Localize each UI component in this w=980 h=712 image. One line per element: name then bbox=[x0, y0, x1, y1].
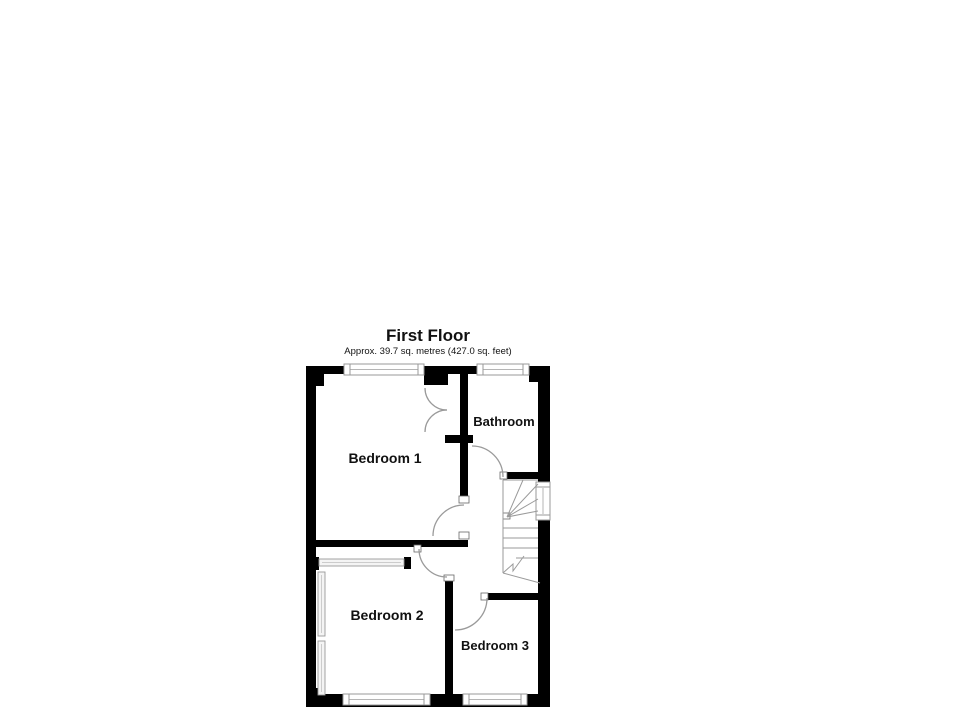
built-in-wardrobes bbox=[318, 559, 404, 695]
door-arc-bedroom-3 bbox=[455, 598, 487, 630]
door-arc-cupboard-bottom bbox=[425, 410, 447, 432]
jamb-bedroom1-door-top bbox=[459, 496, 469, 503]
stair-break-zigzag bbox=[503, 556, 524, 573]
stair-winder-treads bbox=[507, 480, 538, 517]
door-arc-bedroom-2 bbox=[419, 549, 447, 577]
wall-bedroom2-north-cap-right bbox=[404, 557, 411, 569]
wardrobe-bedroom2-west-upper bbox=[318, 572, 325, 636]
window-bedroom2-rear bbox=[343, 694, 430, 705]
wall-bedroom2-north-cap-left bbox=[312, 557, 319, 570]
plan-area-subtitle: Approx. 39.7 sq. metres (427.0 sq. feet) bbox=[344, 346, 511, 357]
door-arc-bedroom-1 bbox=[433, 505, 464, 536]
door-arc-bathroom bbox=[472, 446, 503, 477]
wardrobe-bedroom2-west-lower bbox=[318, 641, 325, 695]
room-label-bedroom-3: Bedroom 3 bbox=[461, 638, 529, 653]
room-label-bedroom-2: Bedroom 2 bbox=[350, 607, 423, 623]
room-label-bedroom-1: Bedroom 1 bbox=[348, 450, 421, 466]
window-bathroom-front bbox=[477, 364, 529, 375]
wardrobe-bedroom2-north bbox=[319, 559, 404, 566]
wall-cupboard-top-stub bbox=[424, 374, 448, 385]
stair-treads bbox=[503, 528, 538, 558]
jamb-bedroom2-door bbox=[414, 545, 421, 552]
floorplan-page: First Floor Approx. 39.7 sq. metres (427… bbox=[0, 0, 980, 712]
door-arc-cupboard-top bbox=[425, 388, 447, 410]
floorplan-drawing: First Floor Approx. 39.7 sq. metres (427… bbox=[0, 0, 980, 712]
jamb-bedroom1-door-bottom bbox=[459, 532, 469, 539]
window-stairs-side bbox=[536, 482, 550, 520]
jamb-divider-top-cap bbox=[444, 575, 454, 581]
plan-title: First Floor bbox=[386, 326, 470, 345]
wall-cupboard-bottom-stub bbox=[445, 435, 473, 443]
window-bedroom1-front bbox=[344, 364, 424, 375]
wall-bedroom3-north bbox=[488, 593, 538, 600]
wall-right bbox=[538, 366, 550, 707]
room-label-bathroom: Bathroom bbox=[473, 414, 534, 429]
stair-break-cut bbox=[503, 573, 540, 583]
wall-bedroom2-bedroom3-divider bbox=[445, 580, 453, 694]
room-labels: Bedroom 1 Bathroom Bedroom 2 Bedroom 3 bbox=[348, 414, 534, 653]
staircase bbox=[503, 480, 540, 583]
stair-outline bbox=[503, 480, 538, 573]
window-bedroom3-rear bbox=[463, 694, 527, 705]
wall-bedroom1-south bbox=[312, 540, 468, 547]
wall-left bbox=[306, 366, 316, 707]
wall-bathroom-south bbox=[507, 472, 538, 479]
